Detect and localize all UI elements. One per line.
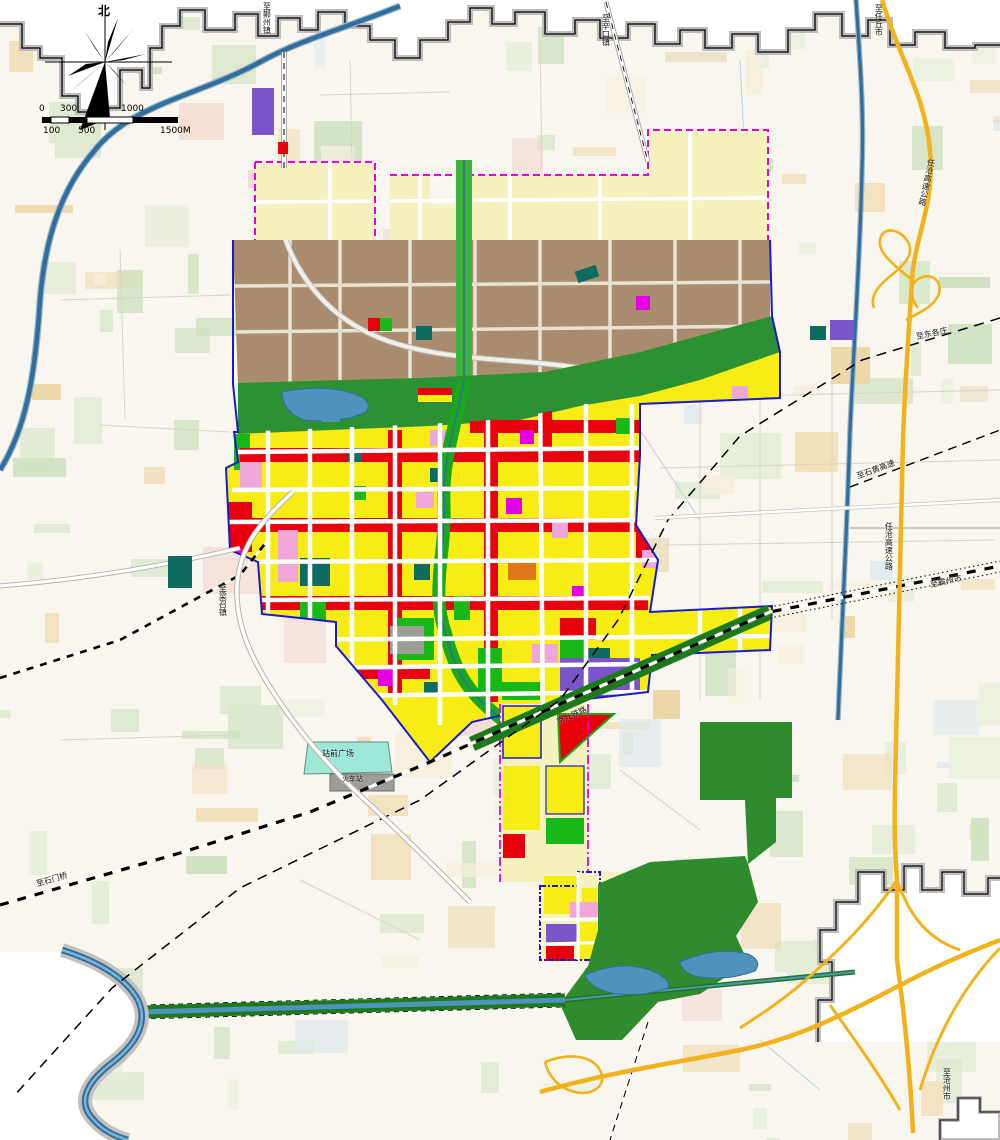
scale-tick-500: 500 [78, 126, 95, 136]
scale-bar [42, 117, 178, 123]
road-label-to-renqiu: 至任丘市 [874, 4, 882, 36]
urban-planning-map[interactable]: 北 0 300 1000 100 500 1500M 至鄚州镇 至辛口镇 至任丘… [0, 0, 1000, 1140]
canal-main [142, 993, 565, 1019]
road-label-to-liangzhao: 至梁召镇 [218, 584, 226, 616]
road-label-to-mozhou: 至鄚州镇 [262, 2, 270, 34]
north-green-strip [456, 160, 472, 378]
map-canvas [0, 0, 1000, 1140]
railway-station-label: 火车站 [342, 776, 363, 783]
expressway-label-south: 任沧高速公路 [884, 522, 892, 570]
road-label-to-xinkou: 至辛口镇 [601, 14, 609, 46]
scale-tick-0: 0 [39, 104, 45, 114]
station-plaza-label: 站前广场 [322, 750, 354, 758]
scale-tick-300: 300 [60, 104, 77, 114]
scale-tick-1500: 1500M [160, 126, 191, 136]
scale-tick-100: 100 [43, 126, 60, 136]
north-label: 北 [98, 2, 110, 19]
scale-tick-1000: 1000 [121, 104, 144, 114]
road-label-to-cangzhou: 至沧州市 [942, 1068, 950, 1100]
county-boundary-north [0, 0, 1000, 112]
